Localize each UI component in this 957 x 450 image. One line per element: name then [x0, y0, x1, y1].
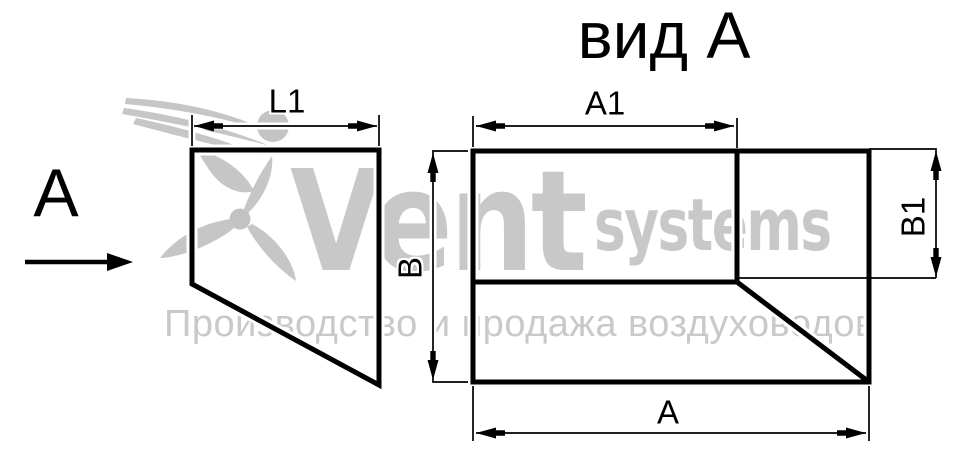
arrowhead-a1-left [476, 121, 505, 132]
dim-label-l1: L1 [269, 85, 306, 118]
view-title: вид А [578, 2, 751, 68]
arrowhead-a-right [837, 428, 866, 439]
front-view-inner-edges [473, 151, 869, 382]
arrowhead-l1-left [194, 121, 223, 132]
arrowhead-a1-right [705, 121, 734, 132]
drawing-linework-svg [0, 0, 957, 450]
view-direction-arrowhead [107, 253, 133, 271]
technical-drawing-canvas: Vent systems Производство и продажа возд… [0, 0, 957, 450]
side-view-outline [192, 150, 379, 385]
view-direction-label: А [33, 159, 78, 227]
arrowhead-b1-top [931, 151, 942, 180]
arrowhead-b-bottom [428, 351, 439, 380]
arrowhead-b-top [428, 153, 439, 182]
dim-label-a: А [657, 396, 679, 429]
dim-label-a1: A1 [585, 87, 625, 120]
arrowhead-b1-bottom [931, 248, 942, 277]
front-view-outline [473, 151, 869, 382]
dim-label-b: В [394, 257, 427, 279]
arrowhead-a-left [476, 428, 505, 439]
arrowhead-l1-right [348, 121, 377, 132]
dim-label-b1: В1 [897, 197, 930, 237]
